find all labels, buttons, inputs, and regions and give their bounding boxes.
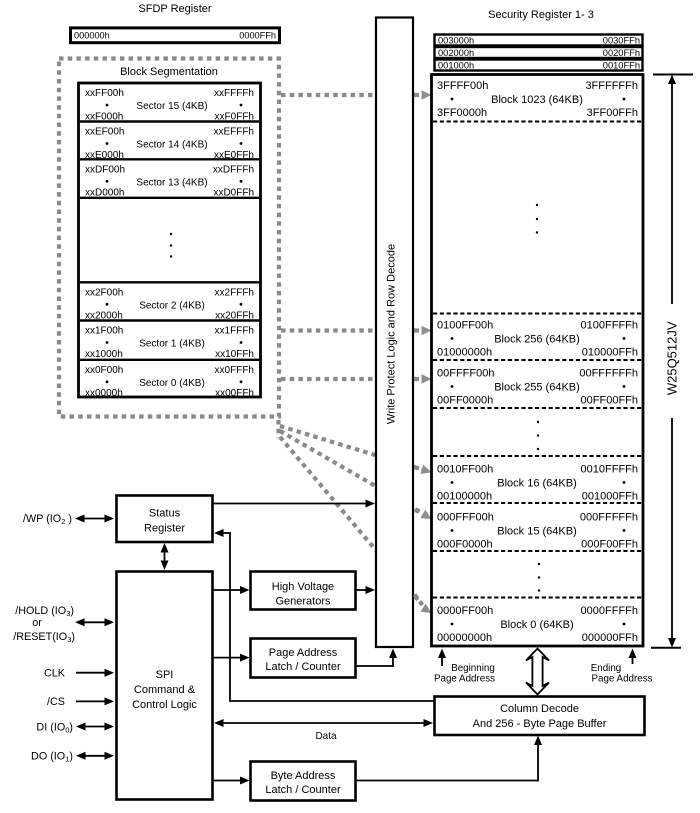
svg-text:Byte Address: Byte Address bbox=[271, 770, 336, 782]
svg-text:xxFF00h: xxFF00h bbox=[85, 88, 124, 99]
svg-text:DI (IO0): DI (IO0) bbox=[36, 722, 73, 735]
svg-text:00FF00FFh: 00FF00FFh bbox=[581, 395, 638, 407]
svg-text:xx2000h: xx2000h bbox=[85, 311, 123, 322]
svg-text:Register: Register bbox=[144, 523, 185, 535]
svg-text:Block 1023 (64KB): Block 1023 (64KB) bbox=[491, 94, 583, 106]
svg-text:/CS: /CS bbox=[47, 696, 65, 708]
svg-text:Column Decode: Column Decode bbox=[500, 703, 579, 715]
svg-text:xx00FFh: xx00FFh bbox=[215, 388, 254, 399]
svg-text:Page Address: Page Address bbox=[434, 674, 495, 685]
svg-text:/WP (IO2 ): /WP (IO2 ) bbox=[23, 513, 72, 526]
svg-text:002000h: 002000h bbox=[438, 48, 474, 58]
svg-text:Latch / Counter: Latch / Counter bbox=[265, 661, 341, 673]
svg-text:xxF0FFh: xxF0FFh bbox=[215, 111, 254, 122]
svg-text:Block 16 (64KB): Block 16 (64KB) bbox=[497, 478, 576, 490]
svg-text:000000FFh: 000000FFh bbox=[582, 632, 638, 644]
svg-text:00FFFF00h: 00FFFF00h bbox=[437, 368, 494, 380]
svg-text:01000000h: 01000000h bbox=[437, 347, 492, 359]
svg-text:Command &: Command & bbox=[134, 684, 196, 696]
svg-text:0000FF00h: 0000FF00h bbox=[437, 605, 493, 617]
svg-text:0030FFh: 0030FFh bbox=[603, 36, 640, 46]
svg-text:xxEFFFh: xxEFFFh bbox=[213, 127, 254, 138]
svg-text:010000FFh: 010000FFh bbox=[582, 347, 638, 359]
svg-text:Sector 2 (4KB): Sector 2 (4KB) bbox=[139, 300, 205, 311]
svg-text:Beginning: Beginning bbox=[451, 663, 495, 674]
svg-text:xx2FFFh: xx2FFFh bbox=[215, 287, 254, 298]
svg-text:High Voltage: High Voltage bbox=[272, 581, 334, 593]
svg-text:CLK: CLK bbox=[44, 668, 66, 680]
svg-text:000F0000h: 000F0000h bbox=[437, 539, 493, 551]
svg-text:Sector 15 (4KB): Sector 15 (4KB) bbox=[136, 101, 207, 112]
svg-text:000F00FFh: 000F00FFh bbox=[581, 539, 638, 551]
svg-text:00FFFFFFh: 00FFFFFFh bbox=[579, 368, 638, 380]
svg-text:xxFFFFh: xxFFFFh bbox=[214, 88, 254, 99]
svg-text:Block 255 (64KB): Block 255 (64KB) bbox=[494, 382, 580, 394]
svg-text:3FFFF00h: 3FFFF00h bbox=[437, 80, 488, 92]
svg-text:Write Protect Logic and Row De: Write Protect Logic and Row Decode bbox=[386, 244, 398, 424]
svg-text:xx10FFh: xx10FFh bbox=[215, 349, 254, 360]
svg-text:xx1F00h: xx1F00h bbox=[85, 326, 123, 337]
svg-text:0010FFh: 0010FFh bbox=[603, 61, 640, 71]
svg-text:000000h: 000000h bbox=[74, 30, 110, 40]
svg-text:Sector 1 (4KB): Sector 1 (4KB) bbox=[139, 339, 205, 350]
svg-text:xx2F00h: xx2F00h bbox=[85, 287, 123, 298]
svg-text:Sector 13 (4KB): Sector 13 (4KB) bbox=[136, 177, 207, 188]
svg-text:xx20FFh: xx20FFh bbox=[215, 311, 254, 322]
svg-text:xx1000h: xx1000h bbox=[85, 349, 123, 360]
svg-text:xxEF00h: xxEF00h bbox=[85, 127, 124, 138]
svg-text:And 256 - Byte Page Buffer: And 256 - Byte Page Buffer bbox=[473, 718, 607, 730]
svg-text:or: or bbox=[32, 617, 42, 629]
svg-text:Page Address: Page Address bbox=[591, 674, 652, 685]
svg-text:0100FF00h: 0100FF00h bbox=[437, 320, 493, 332]
svg-text:SPI: SPI bbox=[156, 669, 174, 681]
svg-text:003000h: 003000h bbox=[438, 36, 474, 46]
svg-text:xxF000h: xxF000h bbox=[85, 111, 123, 122]
svg-text:SFDP Register: SFDP Register bbox=[138, 3, 211, 15]
svg-text:0100FFFFh: 0100FFFFh bbox=[581, 320, 638, 332]
svg-text:0010FFFFh: 0010FFFFh bbox=[581, 464, 638, 476]
svg-text:xxD000h: xxD000h bbox=[85, 188, 124, 199]
svg-text:xxDFFFh: xxDFFFh bbox=[213, 164, 254, 175]
svg-text:Status: Status bbox=[149, 508, 181, 520]
svg-text:xxE000h: xxE000h bbox=[85, 150, 124, 161]
svg-text:Block Segmentation: Block Segmentation bbox=[120, 66, 218, 78]
svg-text:0000FFh: 0000FFh bbox=[239, 30, 276, 40]
svg-text:Page Address: Page Address bbox=[269, 647, 338, 659]
svg-text:3FF0000h: 3FF0000h bbox=[437, 107, 487, 119]
svg-text:/HOLD (IO3): /HOLD (IO3) bbox=[15, 605, 74, 618]
svg-text:xxD0FFh: xxD0FFh bbox=[213, 188, 254, 199]
svg-text:Ending: Ending bbox=[591, 663, 622, 674]
svg-text:xxDF00h: xxDF00h bbox=[85, 164, 125, 175]
svg-text:00000000h: 00000000h bbox=[437, 632, 492, 644]
svg-text:00FF0000h: 00FF0000h bbox=[437, 395, 493, 407]
svg-text:xxE0FFh: xxE0FFh bbox=[214, 150, 254, 161]
svg-text:Latch / Counter: Latch / Counter bbox=[265, 784, 341, 796]
svg-text:0010FF00h: 0010FF00h bbox=[437, 464, 493, 476]
svg-text:000FFF00h: 000FFF00h bbox=[437, 512, 494, 524]
svg-text:Security Register 1- 3: Security Register 1- 3 bbox=[488, 9, 594, 21]
svg-text:Data: Data bbox=[315, 731, 337, 742]
svg-text:DO (IO1): DO (IO1) bbox=[31, 751, 73, 764]
svg-text:Sector 0 (4KB): Sector 0 (4KB) bbox=[139, 378, 205, 389]
svg-text:xx0000h: xx0000h bbox=[85, 388, 123, 399]
svg-text:Sector 14 (4KB): Sector 14 (4KB) bbox=[136, 140, 207, 151]
svg-text:3FF00FFh: 3FF00FFh bbox=[587, 107, 638, 119]
svg-text:001000FFh: 001000FFh bbox=[582, 491, 638, 503]
svg-text:00100000h: 00100000h bbox=[437, 491, 492, 503]
svg-text:xx0F00h: xx0F00h bbox=[85, 365, 123, 376]
svg-text:Generators: Generators bbox=[275, 596, 331, 608]
svg-text:W25Q512JV: W25Q512JV bbox=[665, 321, 680, 395]
svg-text:000FFFFFh: 000FFFFFh bbox=[580, 512, 638, 524]
svg-text:0000FFFFh: 0000FFFFh bbox=[581, 605, 638, 617]
svg-text:/RESET(IO3): /RESET(IO3) bbox=[13, 631, 75, 644]
svg-text:Block 15 (64KB): Block 15 (64KB) bbox=[497, 526, 576, 538]
svg-text:Block 256 (64KB): Block 256 (64KB) bbox=[494, 334, 580, 346]
svg-text:xx0FFFh: xx0FFFh bbox=[215, 365, 254, 376]
svg-text:0020FFh: 0020FFh bbox=[603, 48, 640, 58]
svg-text:3FFFFFFh: 3FFFFFFh bbox=[585, 80, 638, 92]
svg-text:Control Logic: Control Logic bbox=[132, 699, 197, 711]
svg-text:001000h: 001000h bbox=[438, 61, 474, 71]
svg-text:xx1FFFh: xx1FFFh bbox=[215, 326, 254, 337]
svg-text:Block 0 (64KB): Block 0 (64KB) bbox=[500, 619, 573, 631]
